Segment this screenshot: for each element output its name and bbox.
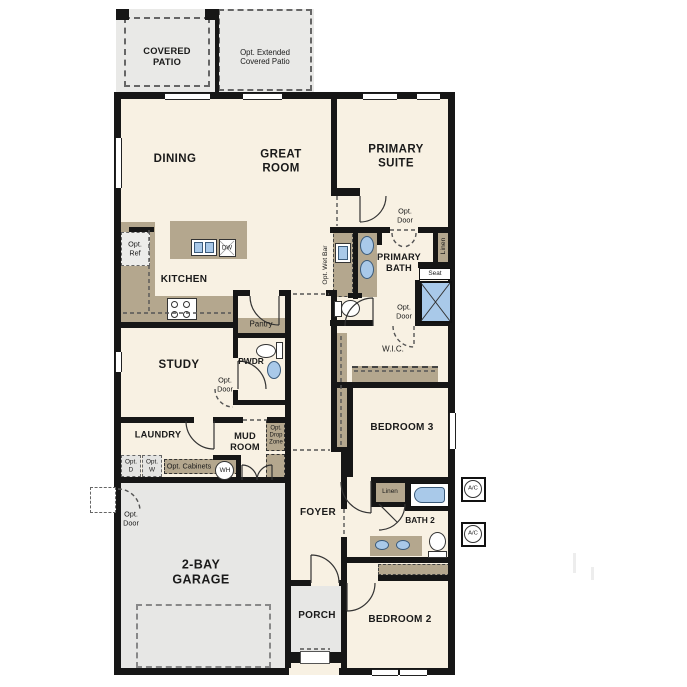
toilet-tank-icon: [428, 551, 447, 558]
room-label-opt-extended-patio: Opt. Extended Covered Patio: [240, 48, 290, 66]
wall: [233, 400, 291, 405]
floor-plan: COVERED PATIO Opt. Extended Covered Pati…: [0, 0, 687, 687]
toilet-tank-icon: [276, 342, 283, 359]
garage-door-dashed: [136, 604, 271, 668]
label-linen2: Linen: [382, 488, 398, 496]
wall: [114, 668, 289, 675]
shower-icon: [420, 281, 452, 323]
label-opt-dryer: Opt. D: [125, 458, 137, 473]
label-opt-washer: Opt. W: [146, 458, 158, 473]
label-dishwasher: DW: [222, 245, 232, 252]
opt-door-landing: [90, 487, 116, 513]
wall: [233, 296, 238, 322]
label-ac: A/C: [468, 486, 478, 493]
room-label-great-room: GREAT ROOM: [260, 148, 301, 175]
label-opt-door: Opt. Door: [123, 510, 139, 527]
pwdr-sink-icon: [267, 361, 281, 379]
window: [115, 138, 122, 188]
vanity-sink-icon: [360, 236, 374, 255]
window: [115, 352, 122, 372]
window: [363, 93, 397, 100]
room-label-laundry: LAUNDRY: [135, 430, 182, 441]
label-opt-drop-zone: Opt. Drop Zone: [269, 425, 283, 446]
room-label-wic: W.I.C.: [382, 344, 404, 353]
label-opt-door: Opt. Door: [396, 303, 412, 320]
label-opt-wet-bar: Opt. Wet Bar: [320, 235, 332, 295]
wall: [331, 97, 337, 196]
wall: [378, 575, 455, 581]
room-label-dining: DINING: [154, 153, 197, 167]
wall: [215, 9, 219, 93]
label-seat: Seat: [428, 270, 441, 278]
window: [417, 93, 440, 100]
mudroom-bench: [266, 454, 285, 478]
room-label-bedroom3: BEDROOM 3: [370, 422, 433, 434]
patio-post: [205, 9, 218, 20]
artifact-mark: [573, 553, 576, 573]
wall: [114, 417, 194, 423]
wall: [291, 580, 311, 586]
room-label-study: STUDY: [159, 359, 200, 373]
vanity-sink-icon: [396, 540, 410, 550]
room-label-mud-room: MUD ROOM: [230, 431, 260, 453]
wall: [339, 580, 347, 586]
sink-basin-icon: [338, 246, 348, 260]
vanity-sink-icon: [360, 260, 374, 279]
label-opt-cabinets: Opt. Cabinets: [167, 463, 212, 472]
artifact-mark: [591, 567, 594, 580]
label-opt-door: Opt. Door: [397, 207, 413, 224]
burner-icon: [183, 311, 190, 318]
wall: [331, 188, 360, 196]
wall: [233, 335, 238, 358]
hall-closet: [336, 333, 347, 449]
burner-icon: [183, 301, 190, 308]
window: [372, 669, 398, 676]
sink-basin-icon: [194, 242, 203, 253]
wall: [341, 449, 347, 509]
label-pantry: Pantry: [249, 319, 272, 328]
label-ac: A/C: [468, 531, 478, 538]
porch-post: [285, 652, 300, 663]
wic-shelf: [352, 366, 438, 382]
wall: [267, 417, 291, 423]
label-opt-ref: Opt. Ref: [128, 240, 142, 257]
window: [449, 413, 456, 449]
wall: [213, 417, 243, 423]
burner-icon: [171, 311, 178, 318]
tub-basin-icon: [414, 487, 445, 503]
toilet-icon: [429, 532, 446, 551]
wall: [114, 477, 291, 483]
label-water-heater: WH: [220, 467, 231, 475]
room-label-primary-bath: PRIMARY BATH: [377, 252, 421, 274]
room-label-bedroom2: BEDROOM 2: [368, 614, 431, 626]
wall: [341, 537, 347, 583]
wall: [377, 227, 382, 245]
sink-basin-icon: [205, 242, 214, 253]
burner-icon: [171, 301, 178, 308]
opt-wet-bar-counter: [333, 229, 353, 297]
wall: [347, 382, 353, 477]
wall: [353, 227, 358, 299]
wall: [114, 322, 238, 328]
wall: [236, 333, 288, 338]
room-label-foyer: FOYER: [300, 507, 336, 519]
room-label-porch: PORCH: [298, 610, 336, 622]
patio-post: [116, 9, 129, 20]
vanity-sink-icon: [375, 540, 389, 550]
wall: [348, 293, 362, 298]
porch-step: [300, 651, 330, 664]
window: [400, 669, 427, 676]
room-label-garage: 2-BAY GARAGE: [172, 557, 229, 587]
porch-post: [330, 652, 347, 663]
room-label-primary-suite: PRIMARY SUITE: [368, 143, 423, 170]
room-label-pwdr: PWDR: [238, 357, 264, 367]
room-label-bath2: BATH 2: [405, 516, 435, 526]
room-label-covered-patio: COVERED PATIO: [143, 46, 190, 68]
label-opt-door: Opt. Door: [217, 376, 233, 393]
window: [165, 93, 210, 100]
room-label-kitchen: KITCHEN: [161, 274, 208, 286]
window: [243, 93, 282, 100]
wall: [371, 502, 407, 507]
toilet-icon: [341, 300, 360, 317]
label-linen: Linen: [438, 216, 450, 276]
bedroom2-closet-shelf: [378, 564, 455, 575]
